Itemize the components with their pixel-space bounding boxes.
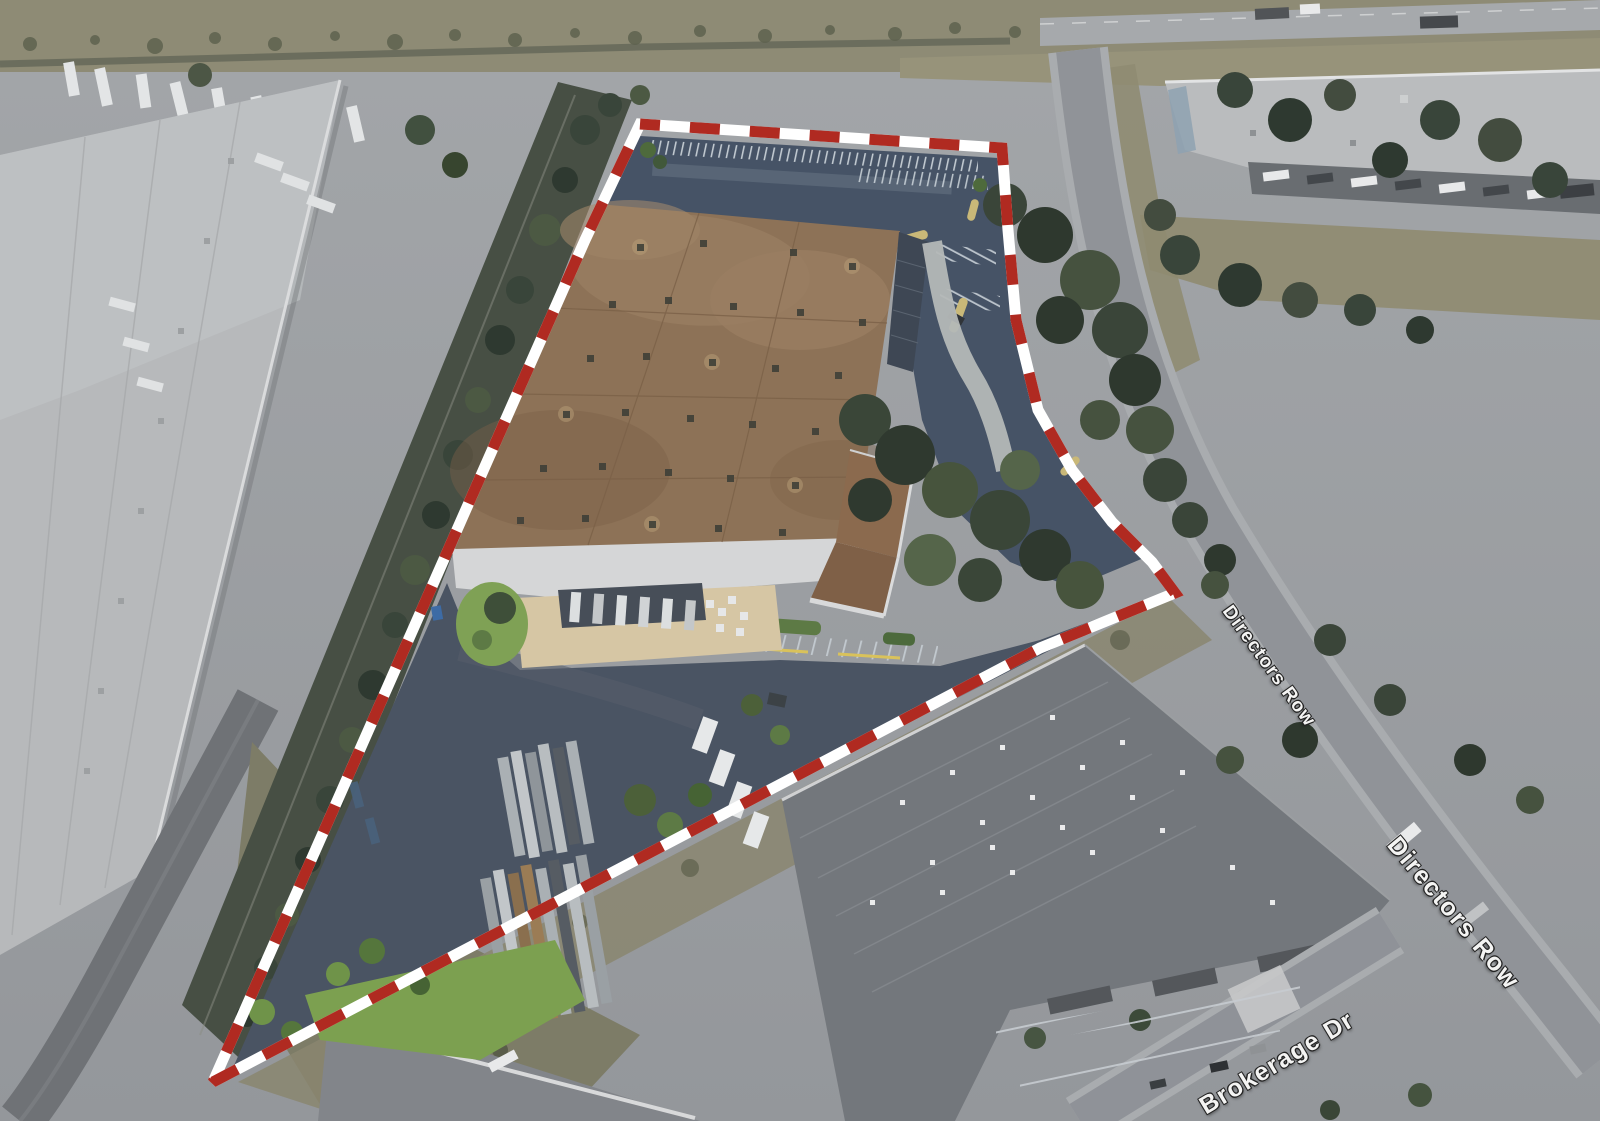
aerial-scene (0, 0, 1600, 1121)
truck (1255, 7, 1290, 20)
truck (1420, 15, 1458, 28)
truck (1300, 3, 1320, 14)
aerial-property-view: Directors Row Directors Row Brokerage Dr (0, 0, 1600, 1121)
